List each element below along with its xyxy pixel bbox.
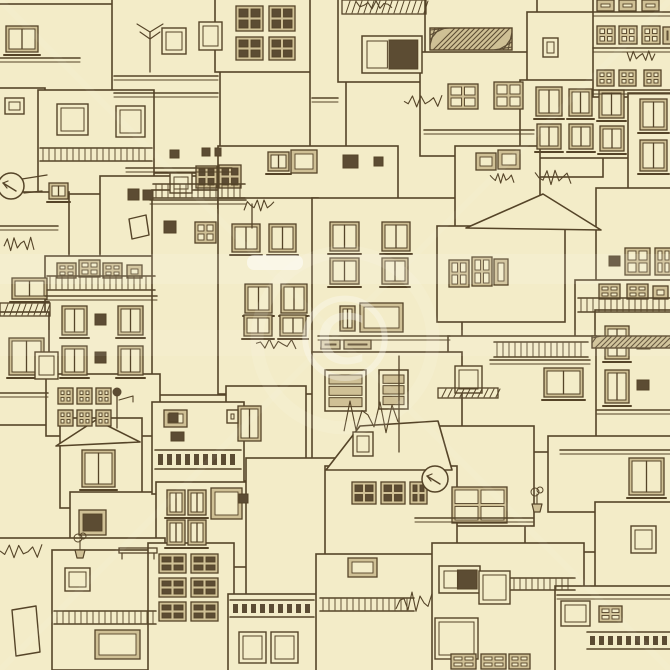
window: [215, 148, 221, 156]
window: [169, 413, 178, 422]
window: [637, 380, 649, 390]
window: [644, 70, 661, 86]
copyright-symbol-icon: ©: [286, 271, 404, 409]
building: [215, 0, 315, 72]
window: [164, 221, 176, 233]
tilted-window: [129, 215, 149, 239]
window: [509, 654, 530, 669]
window: [58, 388, 73, 404]
window: [95, 314, 106, 325]
window: [57, 104, 88, 135]
window: [227, 410, 238, 423]
window: [96, 410, 111, 426]
window: [343, 155, 358, 168]
clock-icon: [0, 173, 24, 199]
window: [543, 38, 558, 57]
window: [77, 388, 92, 404]
window: [627, 284, 648, 299]
window: [128, 189, 139, 200]
window: [479, 571, 510, 604]
window: [435, 618, 478, 659]
window: [170, 150, 179, 158]
window: [451, 654, 476, 669]
window: [171, 432, 184, 441]
window: [77, 410, 92, 426]
clock-icon: [422, 466, 448, 492]
window: [663, 27, 670, 44]
window: [143, 190, 153, 200]
window: [5, 98, 24, 114]
illustration-canvas: ©: [0, 0, 670, 670]
building: [316, 554, 440, 670]
window: [619, 70, 636, 86]
potted-plant-icon: [532, 504, 542, 512]
window: [202, 148, 210, 156]
window: [58, 410, 73, 426]
window: [96, 388, 111, 404]
potted-plant-icon: [75, 550, 85, 558]
building-pattern-illustration: ©: [0, 0, 670, 670]
window: [599, 284, 620, 299]
street-lamp-icon: [113, 388, 122, 397]
window: [239, 494, 248, 503]
window: [481, 654, 506, 669]
window: [374, 157, 383, 166]
